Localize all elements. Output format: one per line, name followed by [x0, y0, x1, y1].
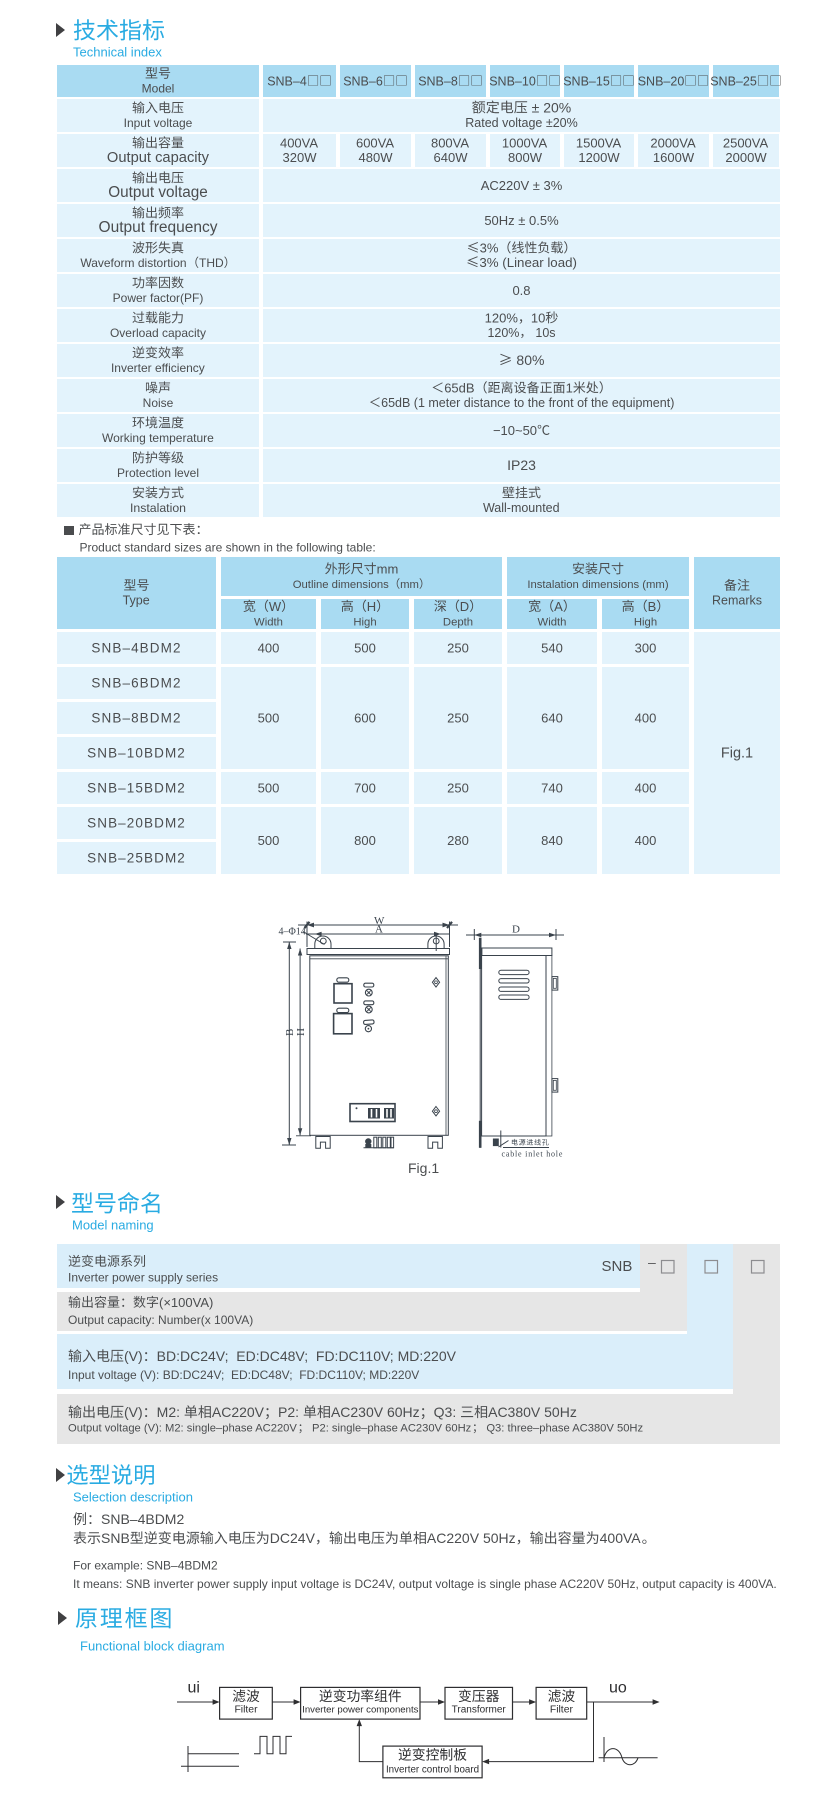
svg-text:SNB–6: SNB–6: [343, 74, 383, 88]
svg-text:Product standard sizes are sho: Product standard sizes are shown in the …: [80, 541, 376, 555]
svg-text:280: 280: [447, 833, 469, 848]
svg-text:Input voltage (V): BD:DC24V;: Input voltage (V): BD:DC24V; ED:DC48V; F…: [68, 1368, 419, 1382]
svg-text:Fig.1: Fig.1: [721, 745, 753, 761]
svg-text:THD: THD: [199, 256, 224, 270]
svg-text:Inverter efficiency: Inverter efficiency: [111, 361, 205, 375]
svg-text:600: 600: [354, 710, 376, 725]
svg-text:400VA: 400VA: [280, 135, 318, 150]
svg-text:10s: 10s: [532, 326, 556, 340]
svg-text:± 20%: ± 20%: [528, 99, 571, 115]
svg-text:Working temperature: Working temperature: [102, 431, 214, 445]
svg-text:320W: 320W: [283, 150, 318, 165]
svg-text:800W: 800W: [508, 150, 543, 165]
svg-text:Model naming: Model naming: [72, 1217, 154, 1232]
svg-text:500: 500: [258, 780, 280, 795]
svg-text:SNB–20: SNB–20: [638, 74, 685, 88]
svg-text:Power factor(PF): Power factor(PF): [113, 291, 204, 305]
svg-text:−10~50: −10~50: [493, 423, 537, 438]
svg-text:400: 400: [635, 780, 657, 795]
svg-text:Output capacity: Number(x 100V: Output capacity: Number(x 100VA): [68, 1313, 253, 1327]
svg-text:SNB: SNB: [602, 1258, 633, 1275]
svg-text:DC24V: DC24V: [270, 1530, 316, 1546]
svg-text:Overload capacity: Overload capacity: [110, 326, 206, 340]
svg-text:250: 250: [447, 640, 469, 655]
svg-text:65dB (1 meter distance to the: 65dB (1 meter distance to the front of t…: [381, 396, 674, 410]
svg-text:1200W: 1200W: [578, 150, 620, 165]
svg-text:Instalation: Instalation: [130, 501, 186, 515]
svg-text:SNB–4BDM2: SNB–4BDM2: [101, 1511, 184, 1527]
svg-text:Input voltage: Input voltage: [124, 116, 193, 130]
svg-text:2000VA: 2000VA: [650, 135, 696, 150]
svg-text:Output voltage: Output voltage: [108, 184, 207, 201]
svg-text:840: 840: [541, 833, 563, 848]
svg-text:1500VA: 1500VA: [576, 135, 622, 150]
svg-text:540: 540: [541, 640, 563, 655]
svg-text:80%: 80%: [513, 352, 545, 368]
svg-text:mm: mm: [377, 561, 399, 576]
svg-text:Waveform distortion: Waveform distortion: [80, 256, 186, 270]
svg-text:600VA: 600VA: [356, 135, 394, 150]
svg-text:A: A: [554, 599, 563, 614]
svg-text:Output frequency: Output frequency: [99, 219, 218, 236]
svg-text:Width: Width: [254, 616, 283, 628]
svg-text:D: D: [460, 599, 469, 614]
svg-text:(V): (V): [124, 1348, 143, 1364]
svg-text:1000VA: 1000VA: [502, 135, 548, 150]
svg-text:SNB–10: SNB–10: [489, 74, 536, 88]
svg-text:Output capacity: Output capacity: [107, 150, 210, 166]
svg-text:B: B: [648, 599, 657, 614]
svg-text:Model: Model: [142, 81, 175, 95]
svg-text:SNB: SNB: [101, 1530, 130, 1546]
svg-text:Functional block diagram: Functional block diagram: [80, 1638, 225, 1653]
svg-text:2500VA: 2500VA: [723, 135, 769, 150]
svg-text:800: 800: [354, 833, 376, 848]
svg-text:SNB–15: SNB–15: [563, 74, 610, 88]
svg-text:SNB–10BDM2: SNB–10BDM2: [87, 745, 186, 760]
svg-text:Protection level: Protection level: [117, 466, 199, 480]
svg-text:Instalation dimensions (mm): Instalation dimensions (mm): [527, 579, 668, 591]
svg-text:Width: Width: [538, 616, 567, 628]
svg-text:It means: SNB inverter power s: It means: SNB inverter power supply inpu…: [73, 1577, 777, 1591]
svg-text:Fig.1: Fig.1: [408, 1160, 439, 1176]
svg-text:700: 700: [354, 780, 376, 795]
svg-text:Remarks: Remarks: [712, 593, 762, 607]
svg-text:W: W: [269, 599, 282, 614]
svg-text:SNB–25BDM2: SNB–25BDM2: [87, 850, 186, 865]
svg-text:BD:DC24V; ED:DC48V; FD:DC110: BD:DC24V; ED:DC48V; FD:DC110V; MD:220V: [157, 1348, 457, 1364]
svg-text:Technical index: Technical index: [73, 44, 162, 59]
svg-text:SNB–20BDM2: SNB–20BDM2: [87, 815, 186, 830]
svg-text:3%: 3%: [480, 240, 499, 255]
svg-text:P2:: P2:: [278, 1404, 303, 1420]
svg-text:SNB–25: SNB–25: [710, 74, 757, 88]
svg-text:IP23: IP23: [507, 457, 536, 473]
svg-text:AC220V ± 3%: AC220V ± 3%: [481, 178, 563, 193]
svg-text:Q3:: Q3:: [434, 1404, 460, 1420]
svg-text:1600W: 1600W: [653, 150, 695, 165]
svg-text:250: 250: [447, 780, 469, 795]
svg-text:M2:: M2:: [157, 1404, 184, 1420]
svg-text:500: 500: [258, 710, 280, 725]
svg-text:AC230V 60Hz: AC230V 60Hz: [331, 1404, 420, 1420]
svg-text:SNB–4BDM2: SNB–4BDM2: [91, 640, 181, 655]
svg-text:SNB–6BDM2: SNB–6BDM2: [91, 675, 181, 690]
svg-text:400VA: 400VA: [600, 1530, 642, 1546]
svg-text:Rated voltage ±20%: Rated voltage ±20%: [465, 116, 578, 130]
svg-text:50Hz ± 0.5%: 50Hz ± 0.5%: [484, 213, 559, 228]
svg-text:800VA: 800VA: [431, 135, 469, 150]
svg-text:SNB–15BDM2: SNB–15BDM2: [87, 780, 186, 795]
svg-text:Outline dimensions: Outline dimensions: [293, 579, 389, 591]
svg-text:2000W: 2000W: [725, 150, 767, 165]
svg-text:(V): (V): [124, 1404, 143, 1420]
svg-text:3% (Linear load): 3% (Linear load): [479, 255, 577, 270]
svg-text:1: 1: [566, 380, 573, 395]
svg-text:High: High: [353, 616, 376, 628]
svg-text:For example: SNB–4BDM2: For example: SNB–4BDM2: [73, 1558, 218, 1572]
svg-text:10: 10: [531, 310, 545, 325]
svg-text:500: 500: [258, 833, 280, 848]
svg-text:Wall-mounted: Wall-mounted: [483, 501, 560, 515]
svg-text:120%: 120%: [485, 310, 519, 325]
svg-text:P2: single–phase AC230V 60Hz: P2: single–phase AC230V 60Hz: [309, 1423, 472, 1435]
svg-text:Type: Type: [123, 593, 150, 607]
svg-text:65dB: 65dB: [444, 380, 474, 395]
svg-text:Inverter power supply series: Inverter power supply series: [68, 1271, 218, 1285]
svg-text:250: 250: [447, 710, 469, 725]
svg-text:SNB–8BDM2: SNB–8BDM2: [91, 710, 181, 725]
svg-text:300: 300: [635, 640, 657, 655]
svg-text:640: 640: [541, 710, 563, 725]
svg-text:mm: mm: [400, 579, 419, 591]
svg-text:–: –: [648, 1254, 656, 1270]
svg-text:Selection description: Selection description: [73, 1489, 193, 1504]
svg-text:SNB–4: SNB–4: [267, 74, 307, 88]
svg-text:Depth: Depth: [443, 616, 473, 628]
svg-text:AC220V: AC220V: [212, 1404, 265, 1420]
svg-text:120%: 120%: [487, 326, 519, 340]
svg-text:640W: 640W: [434, 150, 469, 165]
svg-text:400: 400: [635, 833, 657, 848]
svg-text:740: 740: [541, 780, 563, 795]
svg-text:AC380V 50Hz: AC380V 50Hz: [488, 1404, 577, 1420]
svg-text:400: 400: [635, 710, 657, 725]
svg-text:Q3: three–phase AC380V 50Hz: Q3: three–phase AC380V 50Hz: [483, 1423, 643, 1435]
svg-text:500: 500: [354, 640, 376, 655]
svg-text:H: H: [367, 599, 376, 614]
svg-text:0.8: 0.8: [512, 283, 530, 298]
svg-text:SNB–8: SNB–8: [418, 74, 458, 88]
svg-text:400: 400: [258, 640, 280, 655]
svg-text:Noise: Noise: [143, 396, 174, 410]
svg-text:High: High: [634, 616, 657, 628]
svg-text:480W: 480W: [359, 150, 394, 165]
svg-text:Output voltage (V): M2: single: Output voltage (V): M2: single–phase AC2…: [68, 1423, 297, 1435]
svg-text:(×100VA): (×100VA): [159, 1295, 213, 1310]
svg-text:AC220V 50Hz: AC220V 50Hz: [427, 1530, 516, 1546]
